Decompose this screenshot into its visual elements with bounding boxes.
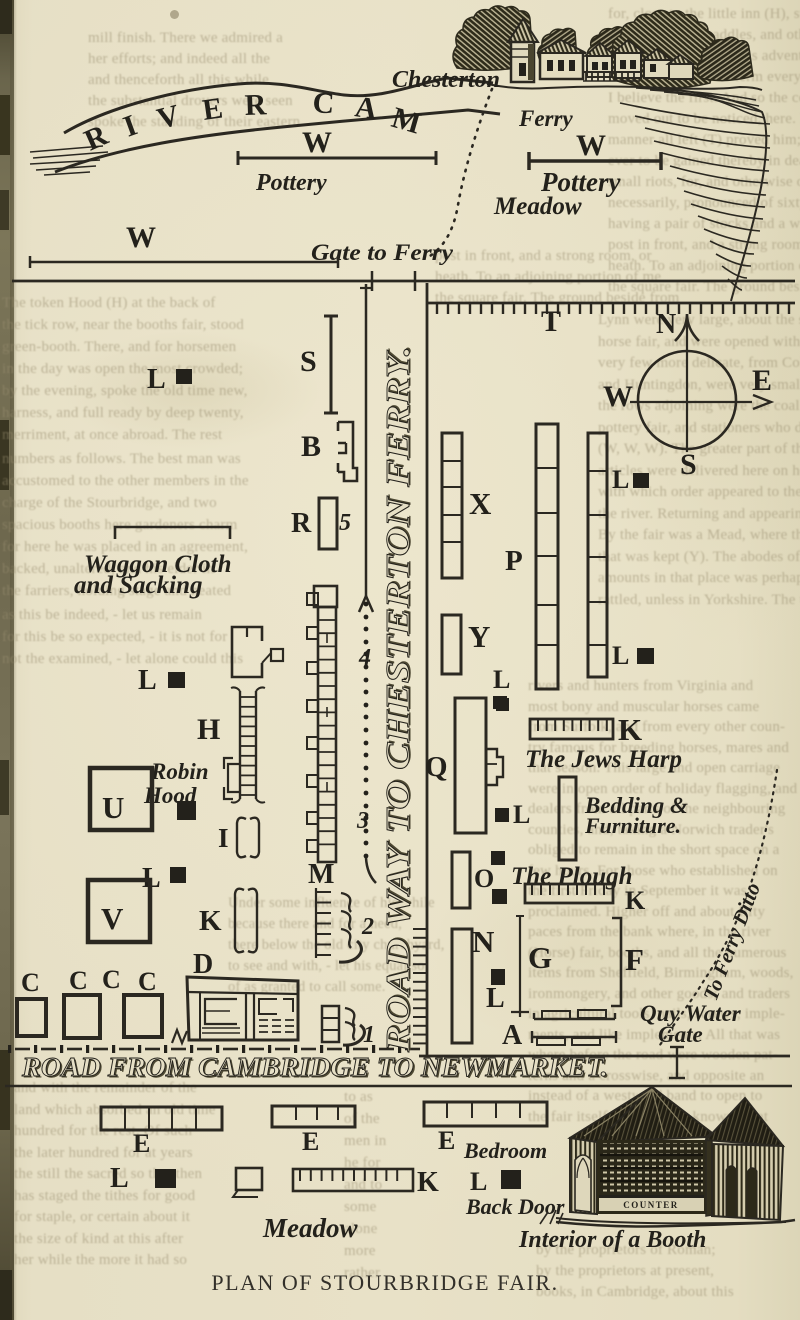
svg-text:3: 3 (356, 808, 369, 834)
svg-text:U: U (102, 790, 124, 825)
svg-text:Gate: Gate (658, 1022, 703, 1047)
svg-text:V: V (154, 98, 183, 135)
svg-text:A: A (502, 1020, 523, 1051)
svg-text:N: N (656, 309, 676, 340)
svg-text:L: L (486, 983, 505, 1014)
svg-text:Y: Y (468, 619, 490, 654)
svg-text:S: S (680, 448, 697, 481)
svg-text:W: W (576, 129, 606, 162)
svg-text:1: 1 (363, 1022, 375, 1048)
svg-text:Back Door: Back Door (465, 1194, 565, 1219)
svg-text:D: D (193, 949, 213, 980)
svg-text:O: O (474, 864, 494, 893)
svg-text:E: E (302, 1127, 319, 1156)
svg-text:C: C (102, 965, 121, 994)
svg-text:W: W (603, 380, 633, 413)
svg-text:5: 5 (339, 510, 351, 536)
svg-text:Bedroom: Bedroom (463, 1138, 547, 1163)
svg-text:K: K (625, 886, 646, 915)
svg-text:R: R (291, 508, 312, 539)
svg-text:Furniture.: Furniture. (584, 813, 681, 838)
svg-text:L: L (470, 1167, 487, 1196)
svg-text:H: H (197, 713, 220, 746)
svg-text:L: L (493, 665, 510, 694)
svg-text:B: B (301, 430, 321, 463)
svg-text:I: I (218, 823, 229, 853)
svg-text:P: P (505, 545, 523, 577)
svg-text:S: S (300, 345, 317, 378)
svg-text:PLAN OF STOURBRIDGE FAIR.: PLAN OF STOURBRIDGE FAIR. (211, 1270, 558, 1295)
svg-text:ROAD WAY TO CHESTERTON FERRY.: ROAD WAY TO CHESTERTON FERRY. (380, 346, 417, 1053)
svg-text:W: W (302, 126, 332, 159)
svg-text:The Jews Harp: The Jews Harp (525, 746, 682, 773)
svg-text:L: L (138, 665, 157, 696)
svg-text:E: E (200, 91, 224, 126)
svg-text:I: I (119, 109, 141, 144)
svg-text:C: C (69, 966, 88, 995)
svg-text:4: 4 (358, 645, 371, 671)
svg-text:F: F (625, 942, 644, 977)
svg-text:E: E (752, 364, 772, 397)
svg-text:C: C (312, 86, 336, 120)
svg-text:2: 2 (361, 914, 374, 940)
svg-text:A: A (353, 90, 379, 126)
svg-text:L: L (110, 1163, 129, 1194)
svg-text:Interior of a Booth: Interior of a Booth (518, 1227, 706, 1253)
svg-text:Meadow: Meadow (262, 1213, 358, 1243)
svg-text:To Ferry Ditto: To Ferry Ditto (698, 879, 765, 1003)
svg-text:Meadow: Meadow (493, 193, 582, 220)
svg-text:COUNTER: COUNTER (623, 1200, 679, 1210)
svg-text:ROAD FROM CAMBRIDGE TO NEWMARK: ROAD FROM CAMBRIDGE TO NEWMARKET. (21, 1052, 608, 1082)
svg-text:G: G (528, 940, 552, 975)
svg-text:L: L (513, 800, 530, 829)
svg-text:K: K (618, 712, 642, 747)
svg-text:V: V (101, 901, 124, 936)
svg-text:X: X (469, 486, 492, 521)
svg-text:M: M (308, 859, 334, 890)
svg-text:Chesterton: Chesterton (392, 67, 500, 93)
svg-text:C: C (138, 967, 157, 996)
svg-text:K: K (199, 905, 222, 937)
svg-text:L: L (612, 641, 629, 670)
svg-text:Robin: Robin (150, 759, 209, 784)
svg-text:R: R (244, 88, 267, 122)
svg-text:and Sacking: and Sacking (74, 572, 203, 599)
svg-text:T: T (541, 305, 561, 338)
svg-text:L: L (147, 364, 166, 395)
svg-text:N: N (472, 924, 494, 959)
svg-text:Q: Q (425, 751, 448, 783)
svg-text:K: K (417, 1167, 439, 1198)
svg-text:M: M (388, 101, 424, 141)
svg-text:E: E (438, 1126, 455, 1155)
svg-text:C: C (21, 968, 40, 997)
svg-text:Ferry: Ferry (518, 106, 573, 131)
svg-text:L: L (612, 465, 629, 494)
svg-text:Pottery: Pottery (255, 170, 327, 196)
svg-text:E: E (133, 1129, 150, 1158)
svg-text:W: W (126, 221, 156, 254)
